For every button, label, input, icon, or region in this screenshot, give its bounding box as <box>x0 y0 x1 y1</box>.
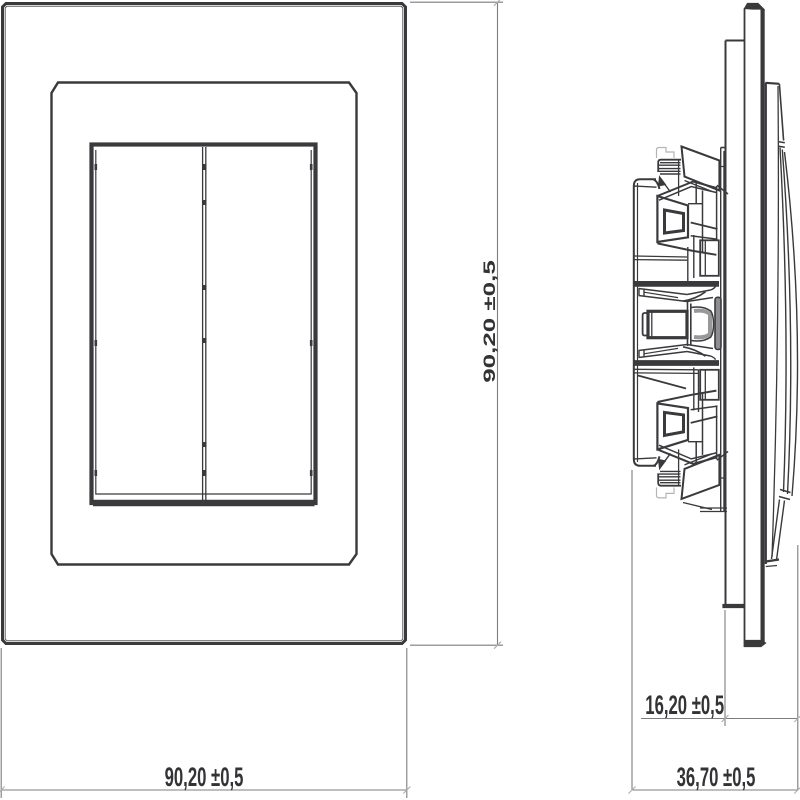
svg-text:36,70 ±0,5: 36,70 ±0,5 <box>677 762 756 792</box>
svg-text:90,20 ±0,5: 90,20 ±0,5 <box>480 260 499 383</box>
svg-text:16,20 ±0,5: 16,20 ±0,5 <box>645 690 724 720</box>
svg-text:90,20 ±0,5: 90,20 ±0,5 <box>165 762 244 792</box>
